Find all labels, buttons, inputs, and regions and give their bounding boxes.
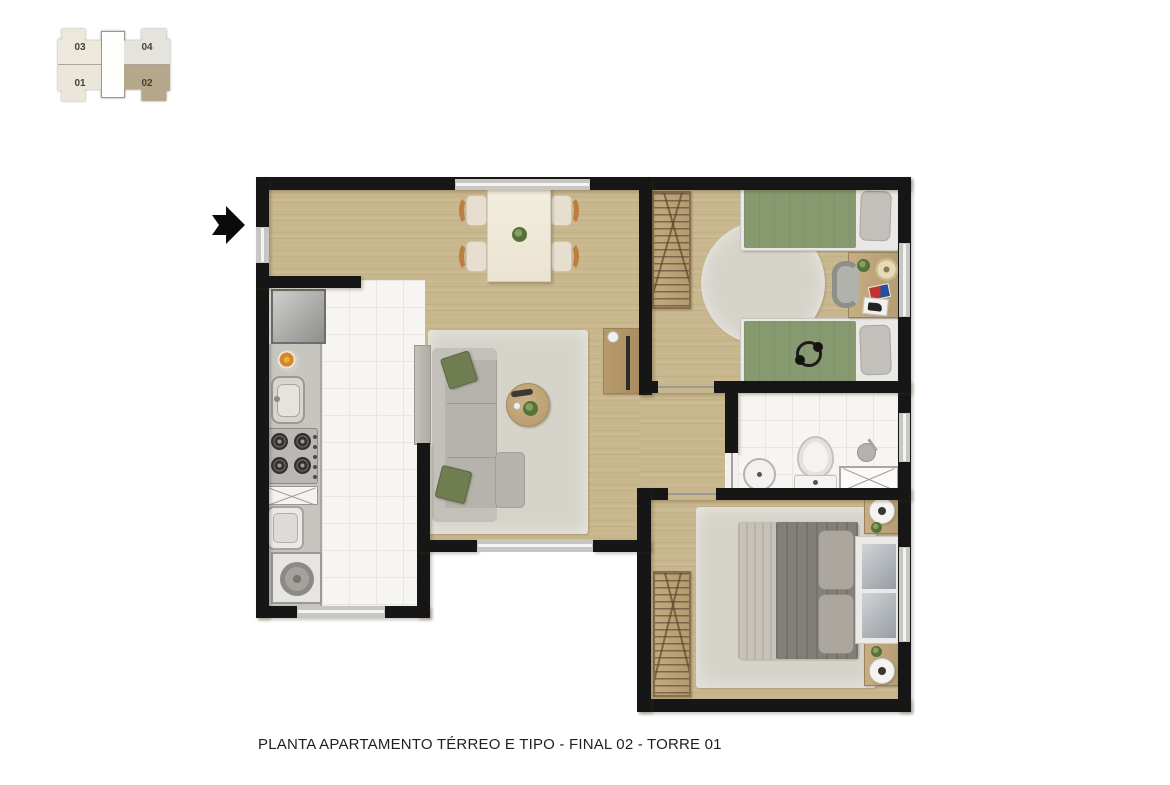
dining-table-plant [512,227,527,242]
wall-bedroom2-bottom [637,699,911,712]
key-plan: 03 01 04 02 [55,18,175,110]
bedroom2-wardrobe [653,571,691,697]
fruit-bowl [277,350,300,373]
bedroom1-bed-top-blanket [744,187,856,248]
desk-plant [857,259,870,272]
wall-living-bottom-left [417,540,477,552]
nightstand-lamp [869,498,895,524]
desk-lamp [874,257,899,282]
bedroom2-window [899,547,910,642]
dining-window [455,179,590,190]
bedroom2-bed-sheet [738,522,780,659]
toilet-bowl [797,436,834,478]
washing-machine [271,552,322,604]
dining-chair-back [459,196,474,225]
kitchen-half-wall [414,345,431,445]
wall-kitchen-top [256,276,361,288]
bedroom2-pillow [818,594,854,654]
stove-knob [313,445,317,449]
wall-bedroom2-left [637,488,651,712]
key-plan-block-left: 03 01 [58,29,102,101]
stove-knob [313,465,317,469]
wall-bedroom1-living [639,177,652,395]
hallway-floor [640,393,725,488]
bedroom1-bed-bottom-pillow [859,324,892,375]
plan-caption: PLANTA APARTAMENTO TÉRREO E TIPO - FINAL… [258,736,722,753]
tv [626,336,630,390]
service-window [297,606,385,618]
stove-burner [271,457,288,474]
tv-stand-vase [607,331,619,343]
dining-chair-back [459,242,474,271]
key-plan-core [101,31,125,98]
headphones-earcup [795,355,805,365]
coffee-table-plant [523,401,538,416]
fridge [271,289,326,344]
nightstand-plant [871,522,882,533]
headboard-shelf [862,544,896,589]
bedroom1-bed-top-pillow [859,190,892,241]
sofa-cushion-line [447,457,497,458]
bedroom1-chair [832,261,860,308]
bedroom2-door [668,488,716,500]
living-window [477,539,593,552]
dining-chair-back [564,242,579,271]
key-plan-block-right: 04 02 [124,29,170,101]
key-plan-unit-03-label: 03 [58,35,102,59]
kitchen-cabinet [266,486,318,505]
stove [266,428,318,484]
stove-knob [313,455,317,459]
sofa-arm-bottom [432,508,497,522]
headboard-shelf [862,593,896,638]
key-plan-unit-04-label: 04 [124,35,170,59]
bedroom2-pillow [818,530,854,590]
stove-knob [313,435,317,439]
bedroom1-door [658,381,714,393]
floor-plan-page: 03 01 04 02 [0,0,1170,785]
stove-burner [294,433,311,450]
coffee-table-cup [513,402,521,410]
headphones-earcup [813,342,823,352]
laundry-tank-basin [273,513,298,543]
bathroom-window [899,413,910,462]
kitchen-sink-basin [277,384,300,417]
entrance-arrow-icon [212,205,246,245]
bathroom-sink-drain [757,472,762,477]
stove-burner [294,457,311,474]
magazine-image [868,302,883,311]
bedroom1-wardrobe [652,191,691,309]
nightstand-plant [871,646,882,657]
washer-drum [280,562,314,596]
key-plan-unit-02-label: 02 [124,71,170,95]
magazine [862,297,889,317]
sofa-cushion-line [447,403,497,404]
nightstand-lamp [869,658,895,684]
dining-chair-back [564,196,579,225]
bathroom-door [725,453,738,488]
kitchen-faucet [274,396,280,402]
stove-knob [313,475,317,479]
wall-bathroom-left [725,393,738,453]
sofa-chaise [495,452,525,508]
bedroom1-window [899,243,910,317]
bedroom2-headboard [855,536,901,644]
wall-living-bottom-right [593,540,651,552]
entry-door [256,227,269,263]
stove-burner [271,433,288,450]
key-plan-unit-01-label: 01 [58,71,102,95]
wall-kitchen-right [417,443,430,618]
toilet-flush-button [813,480,818,485]
